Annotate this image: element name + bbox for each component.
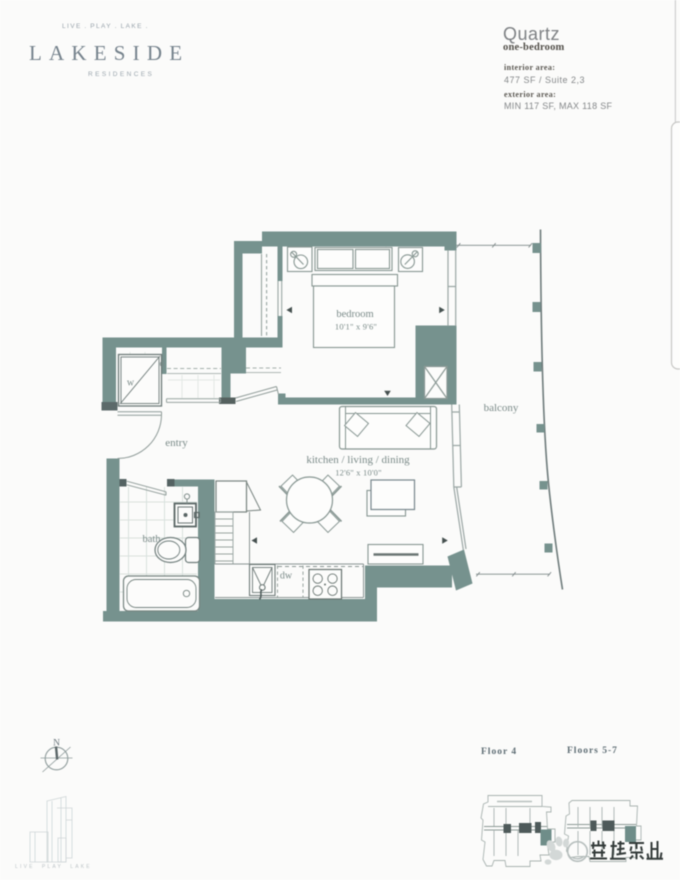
svg-text:bath: bath bbox=[142, 534, 161, 545]
svg-text:dw: dw bbox=[280, 571, 293, 582]
svg-text:d: d bbox=[160, 359, 165, 370]
svg-text:w: w bbox=[127, 378, 135, 389]
svg-text:bedroom: bedroom bbox=[336, 309, 373, 320]
svg-text:10'1" x 9'6": 10'1" x 9'6" bbox=[335, 322, 377, 332]
svg-text:balcony: balcony bbox=[484, 402, 519, 414]
svg-text:12'6" x 10'0": 12'6" x 10'0" bbox=[335, 468, 382, 478]
svg-text:kitchen / living / dining: kitchen / living / dining bbox=[306, 454, 410, 466]
svg-text:entry: entry bbox=[165, 437, 188, 449]
